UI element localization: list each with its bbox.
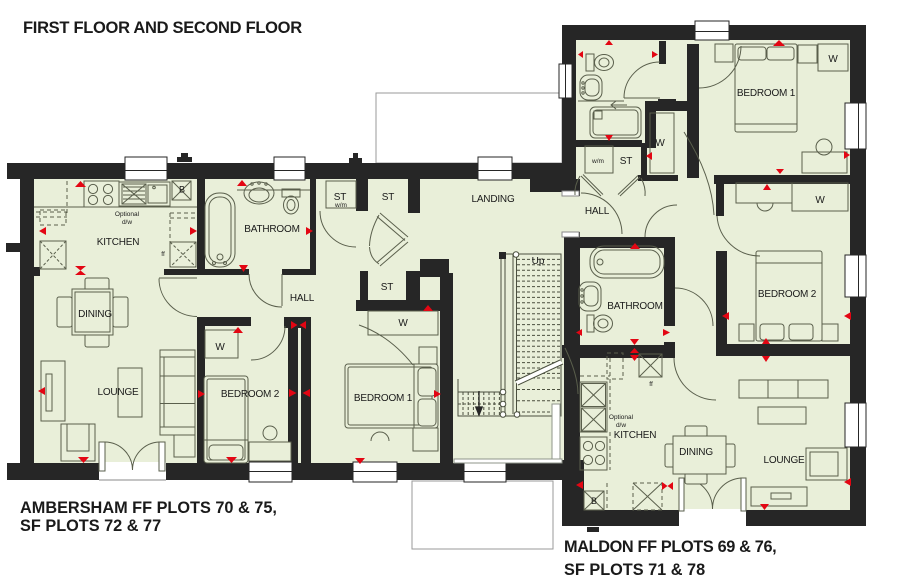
svg-text:W: W (828, 54, 838, 65)
svg-text:B: B (179, 185, 185, 195)
svg-text:DINING: DINING (78, 309, 112, 320)
svg-text:w/m: w/m (591, 158, 604, 165)
svg-text:LOUNGE: LOUNGE (97, 387, 139, 398)
svg-text:AMBERSHAM FF PLOTS 70 & 75,: AMBERSHAM FF PLOTS 70 & 75, (20, 499, 277, 517)
svg-text:ST: ST (382, 192, 394, 203)
svg-text:LANDING: LANDING (471, 194, 514, 205)
svg-text:B: B (591, 496, 597, 506)
svg-text:FIRST FLOOR AND SECOND FLOOR: FIRST FLOOR AND SECOND FLOOR (23, 19, 302, 37)
svg-text:SF PLOTS 71 & 78: SF PLOTS 71 & 78 (564, 561, 705, 579)
svg-text:W: W (398, 318, 408, 329)
svg-text:BATHROOM: BATHROOM (244, 224, 299, 235)
svg-text:KITCHEN: KITCHEN (614, 430, 657, 441)
svg-text:W: W (815, 195, 825, 206)
svg-text:W: W (215, 342, 225, 353)
svg-text:w/m: w/m (334, 202, 347, 209)
svg-text:Optional: Optional (115, 211, 140, 218)
svg-text:BEDROOM 1: BEDROOM 1 (354, 393, 413, 404)
svg-text:ff: ff (649, 381, 653, 388)
svg-text:BATHROOM: BATHROOM (607, 301, 662, 312)
svg-text:SF PLOTS 72 & 77: SF PLOTS 72 & 77 (20, 517, 161, 535)
svg-text:Up: Up (532, 256, 545, 267)
svg-text:Optional: Optional (609, 414, 634, 421)
svg-text:ST: ST (620, 156, 632, 167)
svg-text:MALDON FF PLOTS 69 & 76,: MALDON FF PLOTS 69 & 76, (564, 538, 776, 556)
svg-text:BEDROOM 2: BEDROOM 2 (758, 289, 817, 300)
svg-text:ff: ff (161, 251, 165, 258)
svg-text:d/w: d/w (616, 422, 626, 429)
svg-text:KITCHEN: KITCHEN (97, 237, 140, 248)
svg-text:BEDROOM 1: BEDROOM 1 (737, 88, 796, 99)
svg-text:BEDROOM 2: BEDROOM 2 (221, 389, 280, 400)
svg-text:HALL: HALL (290, 293, 315, 304)
svg-text:LOUNGE: LOUNGE (763, 455, 805, 466)
svg-text:DINING: DINING (679, 447, 713, 458)
svg-text:d/w: d/w (122, 219, 132, 226)
svg-text:ST: ST (381, 282, 393, 293)
svg-text:HALL: HALL (585, 206, 610, 217)
svg-text:W: W (655, 138, 665, 149)
